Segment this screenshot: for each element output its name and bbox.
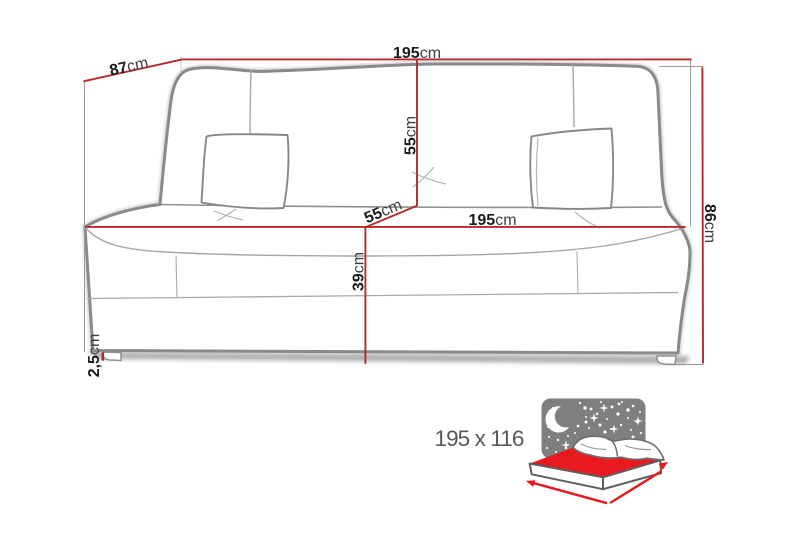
svg-text:195cm: 195cm xyxy=(393,45,441,62)
svg-text:2,5cm: 2,5cm xyxy=(86,334,103,378)
svg-text:86cm: 86cm xyxy=(701,204,718,243)
svg-text:195cm: 195cm xyxy=(468,212,516,229)
svg-text:195 x 116: 195 x 116 xyxy=(434,426,523,451)
svg-text:87cm: 87cm xyxy=(108,55,150,80)
svg-text:55cm: 55cm xyxy=(403,116,420,155)
svg-text:39cm: 39cm xyxy=(351,252,368,291)
